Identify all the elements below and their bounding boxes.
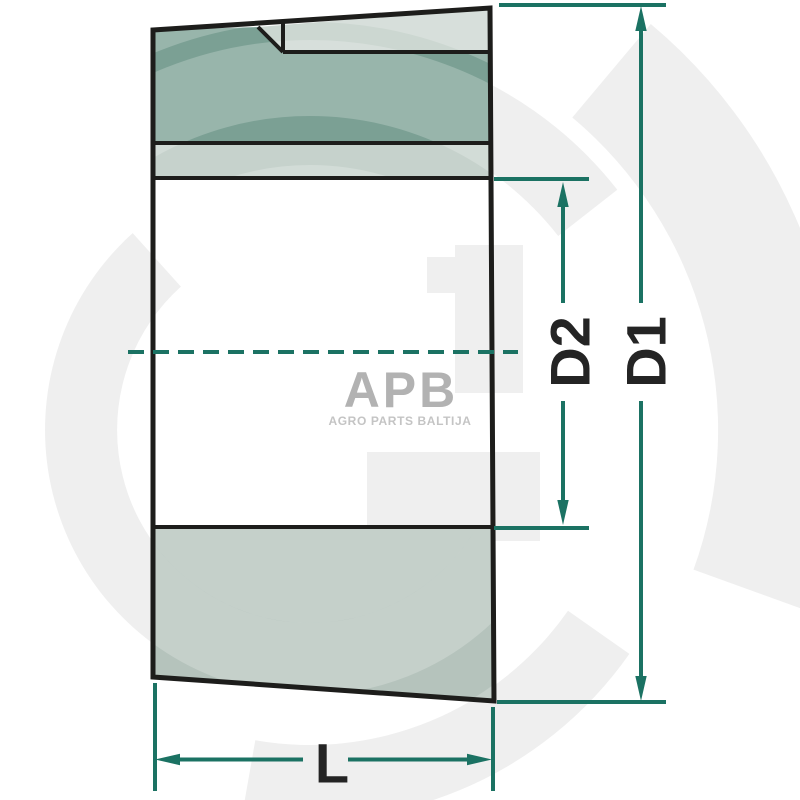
d1-label: D1 (615, 316, 678, 388)
watermark-bar-tab (427, 257, 457, 293)
apb-subtitle-text: AGRO PARTS BALTIJA (328, 414, 471, 428)
apb-brand-text: APB (344, 362, 459, 418)
l-label: L (315, 732, 349, 795)
d2-label: D2 (539, 316, 602, 388)
technical-drawing-canvas: D2 D1 L APB AGRO PARTS BALTIJA (0, 0, 800, 800)
apb-watermark-logo: APB AGRO PARTS BALTIJA (328, 362, 471, 428)
bushing-drawing-svg: D2 D1 L APB AGRO PARTS BALTIJA (0, 0, 800, 800)
